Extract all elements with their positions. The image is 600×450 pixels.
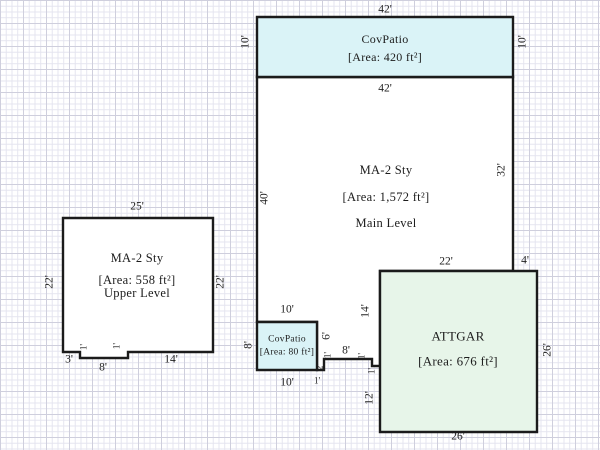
- dimension-label: 6': [321, 332, 333, 340]
- dimension-label: 26': [542, 343, 554, 357]
- dimension-label: 4': [521, 255, 529, 267]
- dimension-label: 8': [342, 345, 350, 357]
- top-covpatio-outline: [257, 17, 513, 77]
- dimension-label: 8': [243, 341, 255, 349]
- dimension-label: 10': [240, 35, 252, 49]
- floor-plan-drawing: [0, 0, 600, 450]
- bottom-patio-label-name: CovPatio: [268, 335, 306, 345]
- dimension-label: 42': [378, 83, 392, 95]
- dimension-label: 25': [130, 201, 144, 213]
- dimension-label: 32': [496, 163, 508, 177]
- top-patio-label-name: CovPatio: [361, 33, 408, 45]
- bottom-patio-label-area: [Area: 80 ft²]: [260, 348, 315, 358]
- main-level-label-name: MA-2 Sty: [360, 164, 413, 177]
- attached-garage-outline: [380, 271, 537, 432]
- dimension-label: 1': [324, 352, 333, 358]
- dimension-label: 12': [364, 391, 376, 405]
- attached-garage-label-name: ATTGAR: [431, 330, 484, 343]
- dimension-label: 10': [280, 304, 294, 316]
- dimension-label: 40': [259, 191, 271, 205]
- main-level-label-area: [Area: 1,572 ft²]: [343, 191, 430, 204]
- sketch-canvas: 42'10'10'42'40'32'25'22'22'3'1'1'8'14'10…: [0, 0, 600, 450]
- dimension-label: 42': [378, 4, 392, 16]
- dimension-label: 3': [65, 354, 73, 366]
- dimension-label: 22': [439, 256, 453, 268]
- dimension-label: 2': [316, 364, 325, 370]
- dimension-label: 1': [358, 353, 367, 359]
- bottom-covpatio-outline: [257, 322, 317, 370]
- upper-level-label-area: [Area: 558 ft²]: [99, 274, 176, 287]
- attached-garage-label-area: [Area: 676 ft²]: [418, 355, 498, 368]
- dimension-label: 8': [99, 362, 107, 374]
- dimension-label: 14': [164, 354, 178, 366]
- dimension-label: 10': [517, 35, 529, 49]
- dimension-label: 1': [113, 343, 122, 349]
- dimension-label: 22': [215, 275, 227, 289]
- dimension-label: 1': [368, 368, 377, 374]
- dimension-label: 26': [451, 431, 465, 443]
- dimension-label: 22': [44, 275, 56, 289]
- upper-level-label-name: MA-2 Sty: [111, 252, 164, 265]
- top-patio-label-area: [Area: 420 ft²]: [348, 51, 422, 63]
- dimension-label: 1': [80, 344, 89, 350]
- main-level-label-level: Main Level: [356, 217, 417, 230]
- dimension-label: 14': [360, 304, 372, 318]
- dimension-label: 10': [280, 377, 294, 389]
- upper-level-label-level: Upper Level: [104, 287, 170, 300]
- dimension-label: 1': [314, 377, 320, 386]
